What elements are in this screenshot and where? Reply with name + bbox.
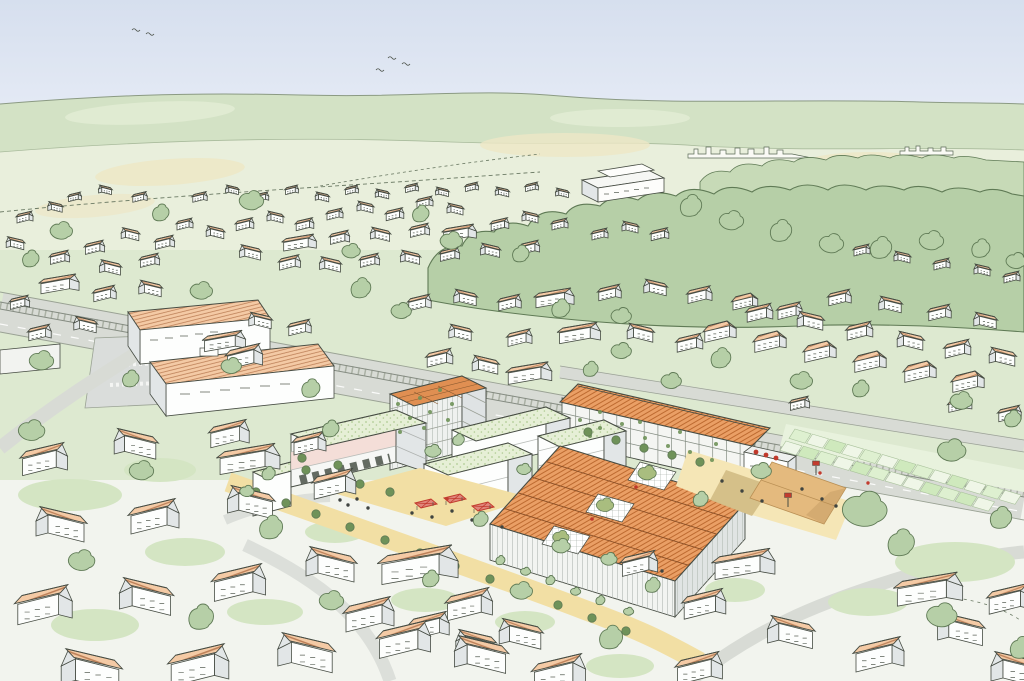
aerial-development-illustration [0,0,1024,681]
illustration-canvas [0,0,1024,681]
